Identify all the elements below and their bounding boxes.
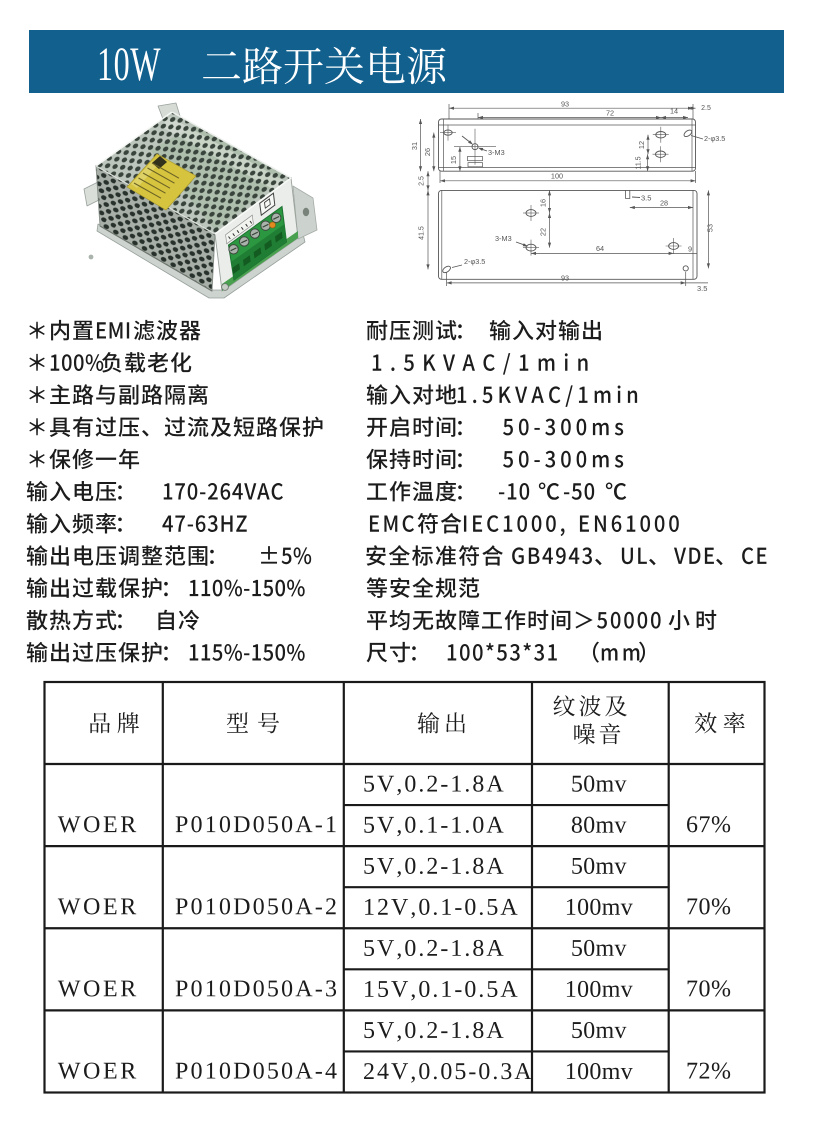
svg-text:2-φ3.5: 2-φ3.5 [704, 134, 725, 143]
svg-text:53: 53 [705, 224, 714, 232]
svg-text:3-M3: 3-M3 [495, 234, 512, 243]
svg-text:16: 16 [539, 199, 548, 207]
svg-text:93: 93 [561, 100, 569, 109]
svg-text:28: 28 [660, 198, 668, 207]
svg-text:14: 14 [670, 107, 678, 116]
svg-text:64: 64 [596, 244, 604, 253]
svg-text:3.5: 3.5 [641, 194, 651, 203]
svg-text:41.5: 41.5 [419, 226, 426, 240]
svg-text:72: 72 [606, 109, 614, 118]
svg-text:2.5: 2.5 [701, 105, 711, 112]
svg-text:15: 15 [449, 156, 458, 164]
svg-text:93: 93 [561, 274, 569, 283]
svg-text:11.5: 11.5 [635, 156, 642, 169]
svg-text:22: 22 [539, 228, 548, 236]
svg-text:26: 26 [423, 148, 432, 156]
svg-text:12: 12 [637, 141, 646, 149]
svg-text:9: 9 [688, 245, 692, 254]
svg-text:3-M3: 3-M3 [488, 148, 505, 157]
svg-text:100: 100 [551, 171, 563, 180]
svg-text:3.5: 3.5 [697, 284, 707, 293]
svg-text:31: 31 [410, 142, 419, 150]
svg-text:2-φ3.5: 2-φ3.5 [464, 257, 485, 266]
svg-text:2.5: 2.5 [419, 176, 426, 186]
